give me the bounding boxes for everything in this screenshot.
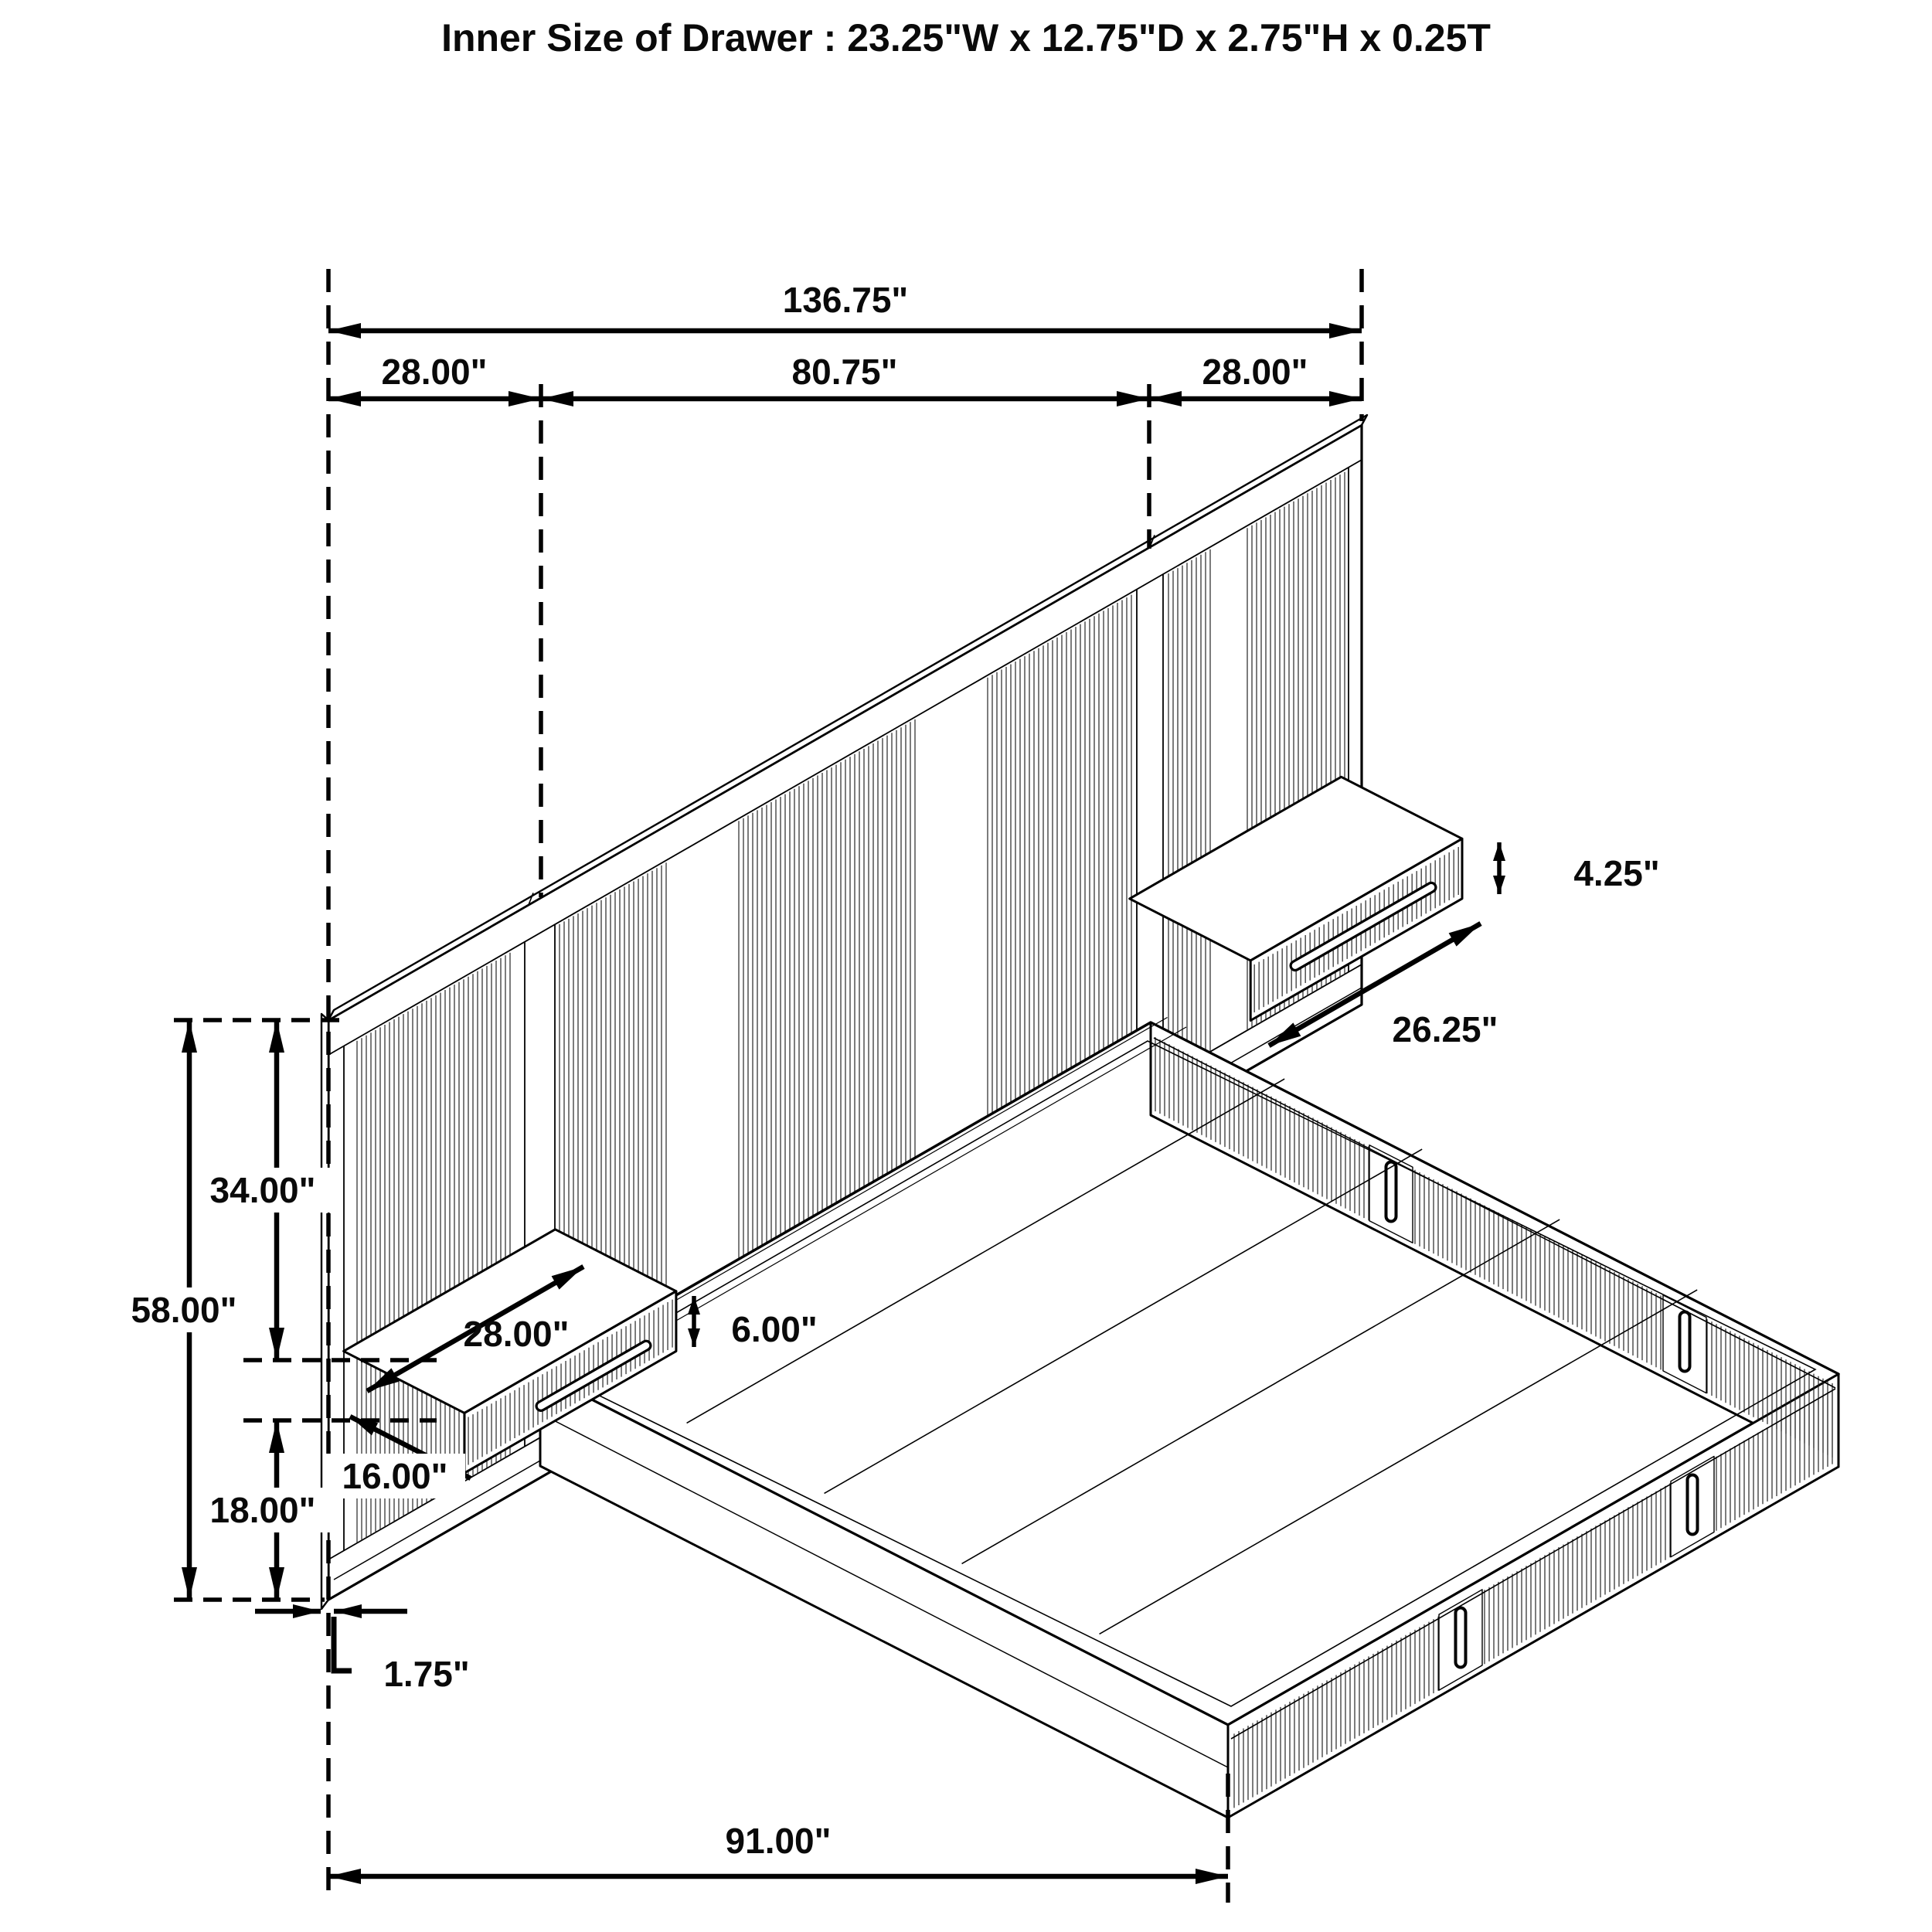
dim-left-nightstand-height: 6.00" (731, 1309, 817, 1349)
dim-overall-width: 136.75" (783, 280, 909, 320)
dim-panel-thickness: 1.75" (383, 1654, 469, 1694)
dim-bed-length: 91.00" (726, 1821, 832, 1861)
page-title: Inner Size of Drawer : 23.25"W x 12.75"D… (441, 16, 1491, 60)
dim-left-nightstand-depth: 16.00" (325, 1454, 465, 1498)
bed-dimension-diagram: Inner Size of Drawer : 23.25"W x 12.75"D… (0, 0, 1932, 1932)
dim-right-panel-width: 28.00" (1202, 352, 1308, 392)
dim-left-nightstand-width: 28.00" (464, 1314, 570, 1354)
dim-left-panel-width: 28.00" (382, 352, 488, 392)
diagram-page: Inner Size of Drawer : 23.25"W x 12.75"D… (0, 0, 1932, 1932)
bed-isometric-drawing (321, 415, 1838, 1818)
svg-text:16.00": 16.00" (342, 1456, 448, 1496)
dim-right-nightstand-height: 4.25" (1573, 853, 1659, 893)
svg-text:58.00": 58.00" (131, 1290, 237, 1330)
dim-lower-height: 18.00" (195, 1488, 331, 1532)
dim-upper-height: 34.00" (195, 1168, 331, 1213)
svg-text:34.00": 34.00" (210, 1170, 316, 1210)
dim-headboard-height: 58.00" (116, 1287, 252, 1332)
dim-center-width: 80.75" (792, 352, 898, 392)
dim-right-nightstand-width: 26.25" (1393, 1009, 1498, 1049)
svg-text:18.00": 18.00" (210, 1490, 316, 1530)
